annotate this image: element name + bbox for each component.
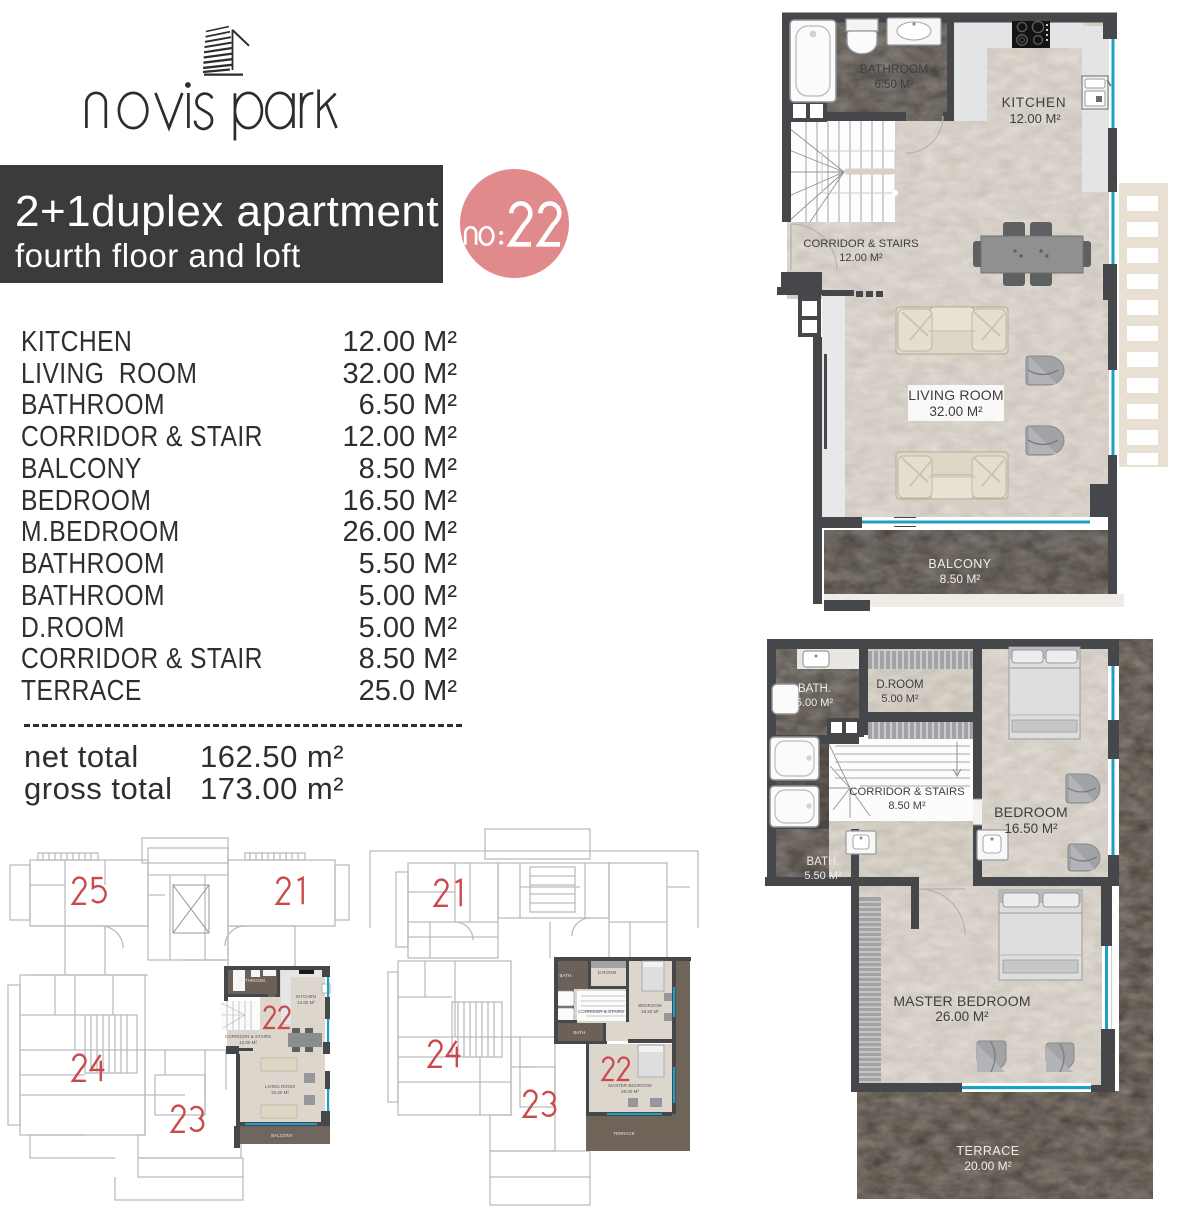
- svg-text:BEDROOM: BEDROOM: [994, 804, 1068, 820]
- svg-text:12.00 M²: 12.00 M²: [839, 252, 883, 264]
- svg-text:CORRIDOR & STAIRS: CORRIDOR & STAIRS: [578, 1009, 624, 1014]
- svg-text:5.50 M²: 5.50 M²: [804, 870, 842, 882]
- svg-text:32.00 M²: 32.00 M²: [929, 404, 983, 419]
- svg-text:16.50 M²: 16.50 M²: [1004, 821, 1058, 836]
- svg-text:BATH.: BATH.: [574, 1030, 587, 1035]
- svg-text:MASTER BEDROOM: MASTER BEDROOM: [893, 993, 1030, 1009]
- svg-text:BALCONY: BALCONY: [271, 1133, 293, 1138]
- svg-text:TERRACE: TERRACE: [613, 1131, 635, 1136]
- svg-text:8.50 M²: 8.50 M²: [888, 800, 926, 812]
- svg-text:6.50 M²: 6.50 M²: [875, 79, 914, 91]
- svg-text:LIVING ROOM: LIVING ROOM: [908, 387, 1004, 403]
- svg-text:BATHROOM: BATHROOM: [239, 978, 265, 983]
- svg-text:D.ROOM: D.ROOM: [598, 970, 617, 975]
- svg-text:12.00 M²: 12.00 M²: [239, 1040, 257, 1045]
- svg-text:KITCHEN: KITCHEN: [296, 994, 316, 999]
- svg-text:26.00 M²: 26.00 M²: [621, 1089, 639, 1094]
- svg-text:BATH.: BATH.: [806, 856, 839, 868]
- svg-text:CORRIDOR & STAIRS: CORRIDOR & STAIRS: [803, 238, 919, 250]
- svg-text:12.00 M²: 12.00 M²: [1009, 111, 1061, 126]
- svg-text:BEDROOM: BEDROOM: [638, 1003, 662, 1008]
- svg-text:TERRACE: TERRACE: [956, 1144, 1019, 1158]
- svg-text:5.00 M²: 5.00 M²: [796, 697, 834, 709]
- svg-text:8.50 M²: 8.50 M²: [940, 572, 981, 586]
- svg-text:LIVING ROOM: LIVING ROOM: [265, 1084, 295, 1089]
- svg-text:BATH.: BATH.: [560, 973, 573, 978]
- svg-text:KITCHEN: KITCHEN: [1002, 95, 1067, 110]
- svg-text:CORRIDOR & STAIRS: CORRIDOR & STAIRS: [849, 786, 965, 798]
- svg-text:BATH.: BATH.: [798, 683, 831, 695]
- svg-text:MASTER BEDROOM: MASTER BEDROOM: [608, 1083, 652, 1088]
- svg-text:20.00 M²: 20.00 M²: [964, 1159, 1011, 1173]
- svg-text:BALCONY: BALCONY: [928, 557, 991, 571]
- svg-text:32.00 M²: 32.00 M²: [271, 1090, 289, 1095]
- svg-text:26.00 M²: 26.00 M²: [935, 1009, 989, 1024]
- svg-text:CORRIDOR & STAIRS: CORRIDOR & STAIRS: [225, 1034, 271, 1039]
- svg-text:5.00 M²: 5.00 M²: [881, 693, 919, 705]
- svg-text:D.ROOM: D.ROOM: [876, 679, 923, 691]
- svg-text:BATHROOM: BATHROOM: [860, 62, 928, 76]
- svg-text:16.50 M²: 16.50 M²: [641, 1009, 659, 1014]
- svg-text:12.00 M²: 12.00 M²: [297, 1000, 315, 1005]
